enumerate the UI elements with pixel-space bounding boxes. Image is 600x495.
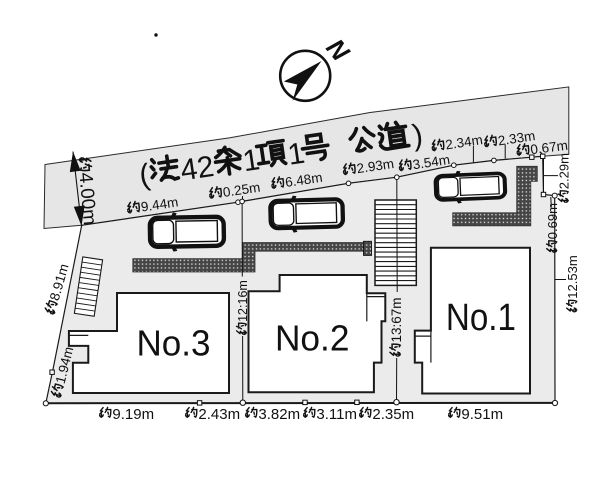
svg-text:No.2: No.2	[275, 318, 350, 359]
svg-text:0.69m: 0.69m	[545, 203, 560, 239]
svg-text:42: 42	[178, 150, 216, 187]
svg-text:3.11m: 3.11m	[316, 406, 357, 423]
svg-text:13:67m: 13:67m	[389, 297, 404, 342]
svg-text:12.53m: 12.53m	[565, 255, 580, 298]
svg-text:3.82m: 3.82m	[258, 406, 300, 423]
svg-text:12:16m: 12:16m	[236, 280, 250, 322]
svg-text:2.29m: 2.29m	[557, 153, 572, 189]
svg-text:No.3: No.3	[137, 323, 211, 364]
svg-text:9.51m: 9.51m	[461, 406, 503, 423]
svg-text:No.1: No.1	[446, 297, 516, 339]
svg-text:2.43m: 2.43m	[198, 406, 240, 423]
svg-text:2.35m: 2.35m	[372, 406, 414, 423]
svg-text:9.19m: 9.19m	[112, 406, 154, 423]
